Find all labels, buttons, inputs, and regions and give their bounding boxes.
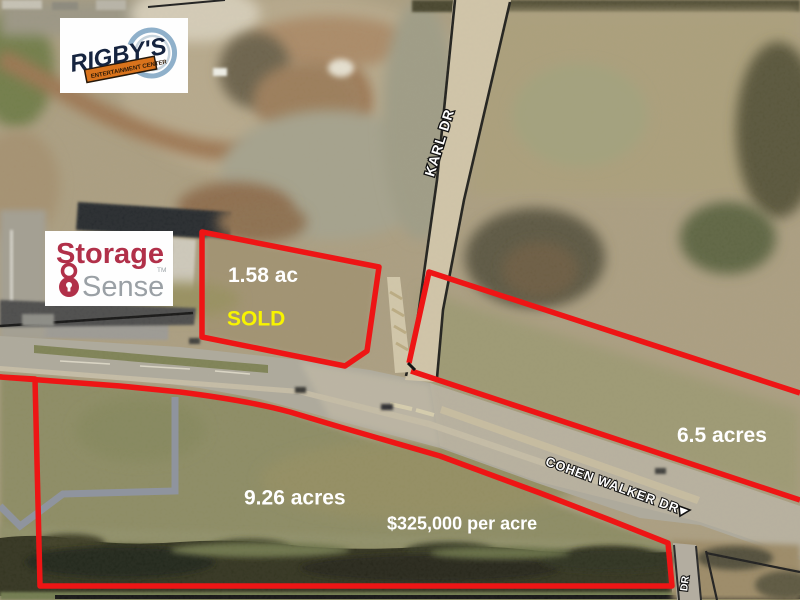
svg-text:9.26 acres: 9.26 acres bbox=[244, 487, 346, 510]
svg-text:DR: DR bbox=[678, 575, 692, 592]
svg-text:1.58 ac: 1.58 ac bbox=[228, 264, 298, 287]
svg-text:Sense: Sense bbox=[82, 271, 164, 303]
svg-text:SOLD: SOLD bbox=[227, 308, 285, 331]
svg-text:6.5 acres: 6.5 acres bbox=[677, 424, 767, 447]
svg-text:$325,000 per acre: $325,000 per acre bbox=[387, 514, 537, 534]
svg-text:TM: TM bbox=[157, 267, 166, 274]
